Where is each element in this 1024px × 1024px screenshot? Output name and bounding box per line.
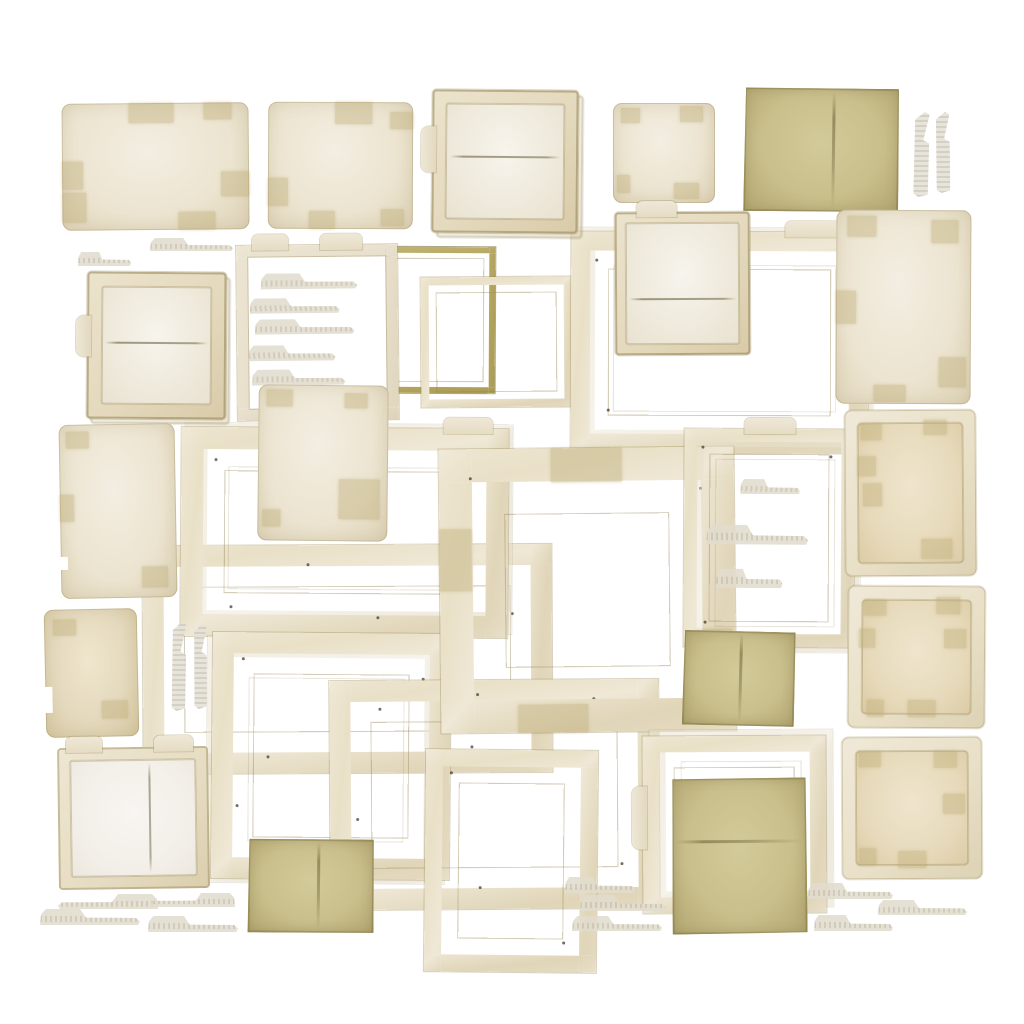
tab-br-2 xyxy=(878,900,967,915)
card-top-2-tape-patch-5 xyxy=(381,209,404,227)
frame-portrait-lower xyxy=(424,749,598,973)
pocket-folder-left xyxy=(86,272,226,420)
open-book-folder-top-tab-1 xyxy=(66,736,102,753)
card-left-tan-tape-patch-1 xyxy=(53,620,76,636)
frame-wide-border-inner-edge xyxy=(505,513,670,667)
frame-landscape-lower-speck-3 xyxy=(356,818,359,821)
tab-upper-2 xyxy=(78,252,131,266)
tab-bl-4 xyxy=(148,916,238,932)
card-top-2-tape-patch-1 xyxy=(335,102,373,124)
card-top-1-tape-patch-5 xyxy=(221,171,249,197)
frame-landscape-mid-speck-4 xyxy=(377,616,380,619)
card-center-portrait-tape-patch-4 xyxy=(263,509,281,526)
frame-wide-border-tape-patch-2 xyxy=(439,529,472,592)
card-top-1-tape-patch-4 xyxy=(62,192,87,223)
frame-portrait-tabs-speck-2 xyxy=(829,455,832,458)
tab-upper-1-overlay xyxy=(150,238,233,251)
frame-square-lower-left-speck-1 xyxy=(241,657,244,660)
card-center-portrait-tape-patch-2 xyxy=(344,393,368,409)
doc-tab-sheet-file-tab-1 xyxy=(261,273,358,290)
card-right-portrait-tape-patch-3 xyxy=(836,291,856,324)
open-book-folder xyxy=(57,746,210,890)
card-mid-left-edge-notch-1 xyxy=(59,557,68,570)
card-right-portrait-tape-patch-2 xyxy=(931,220,958,243)
pocket-folder-left-side-tab xyxy=(76,316,91,357)
tab-br-1-overlay xyxy=(808,883,893,899)
tab-bl-1 xyxy=(58,894,158,909)
frame-portrait-lower-speck-2 xyxy=(562,941,565,944)
frame-wide-border-speck-3 xyxy=(476,693,479,696)
frame-portrait-tabs-speck-1 xyxy=(701,446,704,449)
tab-upper-2-overlay xyxy=(78,252,131,266)
card-left-tan-edge-notch-1 xyxy=(43,687,52,700)
vtab-top-1 xyxy=(913,112,929,197)
inset-folder-right-1-panel xyxy=(858,423,964,564)
doc-tab-sheet-file-tab-4 xyxy=(248,345,335,362)
pocket-folder-top-panel xyxy=(446,103,565,219)
card-top-2-tape-patch-3 xyxy=(268,178,288,206)
card-center-portrait-tape-patch-1 xyxy=(266,389,292,406)
open-book-folder-panel xyxy=(70,759,197,877)
pocket-folder-top-crease-line xyxy=(450,155,561,158)
doc-tab-sheet-top-tab-2 xyxy=(320,234,362,250)
paper-olive-big-fold-crease xyxy=(676,840,803,844)
frame-thin-cream xyxy=(421,276,573,407)
tab-br-3 xyxy=(814,915,893,931)
pocket-folder-center-panel xyxy=(626,223,740,345)
inset-folder-right-1 xyxy=(844,410,976,577)
card-left-tan-edge-notch-2 xyxy=(44,699,53,712)
frame-landscape-mid-speck-1 xyxy=(214,458,217,461)
card-top-1-overlay xyxy=(61,102,249,231)
card-center-portrait xyxy=(257,384,389,541)
card-left-tan-overlay xyxy=(44,608,140,738)
frame-landscape-lower-speck-1 xyxy=(379,708,382,711)
vtab-top-1-overlay xyxy=(913,112,929,197)
pocket-folder-center-crease-line xyxy=(629,298,735,301)
tab-upper-1 xyxy=(150,238,233,251)
frame-portrait-tabs xyxy=(683,429,854,648)
inset-folder-right-3-panel xyxy=(856,751,969,866)
card-right-portrait-overlay xyxy=(835,210,971,405)
paper-olive-top-fold-crease xyxy=(832,92,837,209)
tab-bl-2-overlay xyxy=(150,893,235,907)
card-top-3-tape-patch-4 xyxy=(674,183,698,199)
tab-bl-1-overlay xyxy=(58,894,158,909)
ephemera-collage-canvas xyxy=(0,0,1024,1024)
card-top-1-tape-patch-3 xyxy=(62,162,83,190)
doc-tab-sheet-file-tab-5 xyxy=(252,369,346,386)
card-top-1-tape-patch-2 xyxy=(204,102,232,119)
paper-olive-big-overlay xyxy=(671,777,807,934)
doc-tab-sheet-top-tab-1 xyxy=(252,234,288,250)
tab-br-2-overlay xyxy=(878,900,967,915)
pocket-folder-top xyxy=(431,89,578,233)
paper-olive-small-overlay xyxy=(248,838,375,933)
card-top-2-tape-patch-4 xyxy=(308,211,334,229)
tab-bl-3 xyxy=(40,909,140,925)
frame-wide-border-tape-patch-4 xyxy=(518,704,589,733)
card-top-2-overlay xyxy=(268,102,413,230)
frame-portrait-tabs-speck-3 xyxy=(704,620,707,623)
paper-olive-big xyxy=(671,777,807,934)
pocket-folder-left-crease-line xyxy=(105,342,207,345)
card-center-portrait-tape-patch-3 xyxy=(338,479,380,520)
doc-tab-sheet-file-tab-3 xyxy=(255,318,355,335)
tab-bm-3 xyxy=(572,916,662,931)
pocket-folder-center xyxy=(615,212,751,356)
card-mid-left-overlay xyxy=(58,423,177,599)
pocket-folder-center-top-tab-1 xyxy=(636,201,677,217)
doc-tab-sheet-file-tab-2 xyxy=(250,297,340,314)
paper-olive-center-fold-crease xyxy=(738,634,743,723)
frame-landscape-lower-speck-4 xyxy=(620,862,623,865)
frame-portrait-tabs-inner-edge xyxy=(710,455,829,622)
card-center-portrait-overlay xyxy=(257,384,389,541)
inset-folder-right-2-panel xyxy=(862,600,972,715)
paper-olive-center xyxy=(682,630,796,728)
open-book-folder-spine-line xyxy=(148,763,152,872)
card-top-3 xyxy=(613,103,715,203)
frame-top-center-speck-1 xyxy=(595,258,598,261)
paper-olive-small-fold-crease xyxy=(317,842,321,930)
tab-bl-3-overlay xyxy=(40,909,140,925)
card-top-1-tape-patch-1 xyxy=(129,103,174,124)
tab-br-3-overlay xyxy=(814,915,893,931)
tab-bl-4-overlay xyxy=(148,916,238,932)
paper-olive-small xyxy=(248,838,375,933)
paper-olive-top xyxy=(743,87,900,213)
frame-portrait-lower-speck-1 xyxy=(450,772,453,775)
card-top-3-overlay xyxy=(613,103,715,203)
card-left-tan-tape-patch-2 xyxy=(101,700,127,718)
card-top-3-tape-patch-3 xyxy=(617,175,630,193)
card-right-portrait-tape-patch-1 xyxy=(847,216,877,237)
frame-portrait-lower-inner-edge xyxy=(458,783,564,938)
card-right-portrait xyxy=(835,210,971,405)
card-mid-left-tape-patch-2 xyxy=(60,494,74,522)
tab-bm-3-overlay xyxy=(572,916,662,931)
inset-folder-right-3 xyxy=(842,737,983,880)
card-top-3-tape-patch-1 xyxy=(621,108,639,123)
frame-square-lower-left-speck-3 xyxy=(235,804,238,807)
card-mid-left-tape-patch-3 xyxy=(142,566,168,587)
card-top-3-tape-patch-2 xyxy=(680,106,702,122)
inset-folder-right-2 xyxy=(848,586,986,729)
card-left-tan xyxy=(44,608,140,738)
vtab-top-2 xyxy=(935,112,950,193)
pocket-folder-left-panel xyxy=(102,287,212,405)
pocket-folder-top-side-tab xyxy=(421,126,436,172)
frame-wide-border-tape-patch-1 xyxy=(551,448,622,483)
card-top-1 xyxy=(61,102,249,231)
card-mid-left xyxy=(58,423,177,599)
card-top-2 xyxy=(268,102,413,230)
card-right-portrait-tape-patch-4 xyxy=(938,358,965,387)
card-mid-left-tape-patch-1 xyxy=(66,431,89,449)
card-top-2-tape-patch-2 xyxy=(390,112,413,129)
tab-br-1 xyxy=(808,883,893,899)
tab-bl-2 xyxy=(150,893,235,907)
frame-landscape-mid-speck-3 xyxy=(230,605,233,608)
frame-thin-cream-inner-edge xyxy=(437,293,557,392)
vtab-top-2-overlay xyxy=(935,112,950,193)
card-right-portrait-tape-patch-5 xyxy=(873,384,905,402)
frame-wide-border-speck-1 xyxy=(468,478,471,481)
paper-olive-top-overlay xyxy=(743,87,900,213)
card-top-1-tape-patch-6 xyxy=(178,212,216,230)
